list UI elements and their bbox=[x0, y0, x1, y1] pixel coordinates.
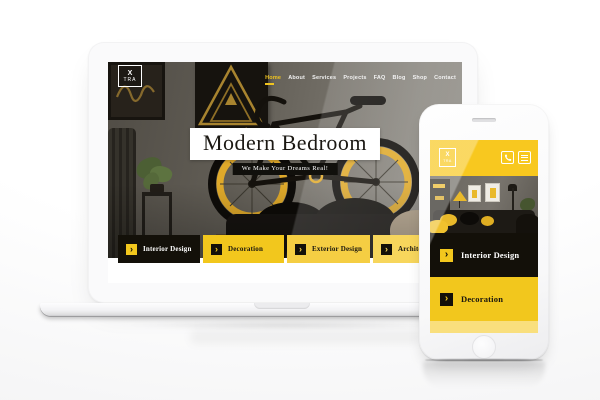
arrow-icon: › bbox=[211, 244, 222, 255]
phone-hero-image bbox=[430, 176, 538, 233]
phone-next-section-peek bbox=[430, 321, 538, 333]
laptop-reflection bbox=[190, 330, 420, 344]
menu-icon[interactable] bbox=[518, 151, 531, 164]
category-exterior-design[interactable]: › Exterior Design bbox=[287, 235, 370, 263]
picture-frame-graphic bbox=[485, 183, 500, 202]
nav-item-contact[interactable]: Contact bbox=[434, 75, 456, 81]
cushion-graphic bbox=[481, 216, 494, 226]
phone-mockup: X TRA bbox=[419, 104, 549, 360]
phone-header-actions bbox=[501, 151, 531, 164]
arrow-icon: › bbox=[440, 293, 453, 306]
logo-text-top: X bbox=[440, 152, 455, 158]
phone-speaker bbox=[472, 118, 496, 122]
phone-site-header: X TRA bbox=[430, 140, 538, 176]
category-interior-design[interactable]: › Interior Design bbox=[118, 235, 200, 263]
category-label: Exterior Design bbox=[312, 245, 362, 253]
phone-reflection bbox=[423, 362, 545, 388]
arrow-icon: › bbox=[381, 244, 392, 255]
arrow-icon: › bbox=[440, 249, 453, 262]
mockup-stage: X TRA Home About Services Projects FAQ B… bbox=[0, 0, 600, 400]
hero-title: Modern Bedroom bbox=[203, 130, 367, 156]
shelf-item-graphic bbox=[433, 184, 445, 188]
nav-item-shop[interactable]: Shop bbox=[413, 75, 428, 81]
category-row: › Interior Design › Decoration › Exterio… bbox=[118, 235, 462, 263]
arrow-icon: › bbox=[126, 244, 137, 255]
hero-tagline: We Make Your Dreams Real! bbox=[233, 163, 338, 175]
category-decoration[interactable]: › Decoration bbox=[203, 235, 284, 263]
phone-screen: X TRA bbox=[430, 140, 538, 333]
phone-site-logo[interactable]: X TRA bbox=[439, 148, 456, 167]
category-label: Interior Design bbox=[143, 245, 192, 253]
main-nav: Home About Services Projects FAQ Blog Sh… bbox=[265, 75, 456, 81]
phone-category-interior-design[interactable]: › Interior Design bbox=[430, 233, 538, 277]
category-label: Decoration bbox=[461, 294, 503, 304]
phone-call-icon[interactable] bbox=[501, 151, 514, 164]
category-label: Interior Design bbox=[461, 250, 519, 260]
laptop-screen: X TRA Home About Services Projects FAQ B… bbox=[108, 62, 462, 283]
logo-text-bottom: TRA bbox=[119, 78, 141, 83]
arrow-icon: › bbox=[295, 244, 306, 255]
nav-item-faq[interactable]: FAQ bbox=[374, 75, 386, 81]
category-label: Decoration bbox=[228, 245, 263, 253]
menu-bars bbox=[521, 155, 528, 161]
lamp-stem-graphic bbox=[459, 201, 460, 208]
cushion-graphic bbox=[460, 212, 479, 225]
nav-item-services[interactable]: Services bbox=[312, 75, 336, 81]
shelf-item-graphic bbox=[435, 196, 444, 200]
nav-item-home[interactable]: Home bbox=[265, 75, 281, 81]
picture-frame-graphic bbox=[468, 185, 481, 202]
phone-category-decoration[interactable]: › Decoration bbox=[430, 277, 538, 321]
nav-item-about[interactable]: About bbox=[288, 75, 305, 81]
logo-text-bottom: TRA bbox=[441, 159, 455, 163]
home-button bbox=[472, 335, 496, 359]
nav-item-blog[interactable]: Blog bbox=[393, 75, 406, 81]
lamp-graphic bbox=[453, 191, 467, 201]
laptop-lid-notch bbox=[254, 303, 310, 309]
site-header: X TRA Home About Services Projects FAQ B… bbox=[108, 62, 462, 102]
throw-graphic bbox=[430, 220, 448, 233]
site-logo[interactable]: X TRA bbox=[118, 65, 142, 87]
logo-text-top: X bbox=[119, 70, 141, 77]
chair-graphic bbox=[516, 214, 538, 233]
hero-title-panel: Modern Bedroom bbox=[190, 128, 380, 160]
nav-item-projects[interactable]: Projects bbox=[343, 75, 366, 81]
